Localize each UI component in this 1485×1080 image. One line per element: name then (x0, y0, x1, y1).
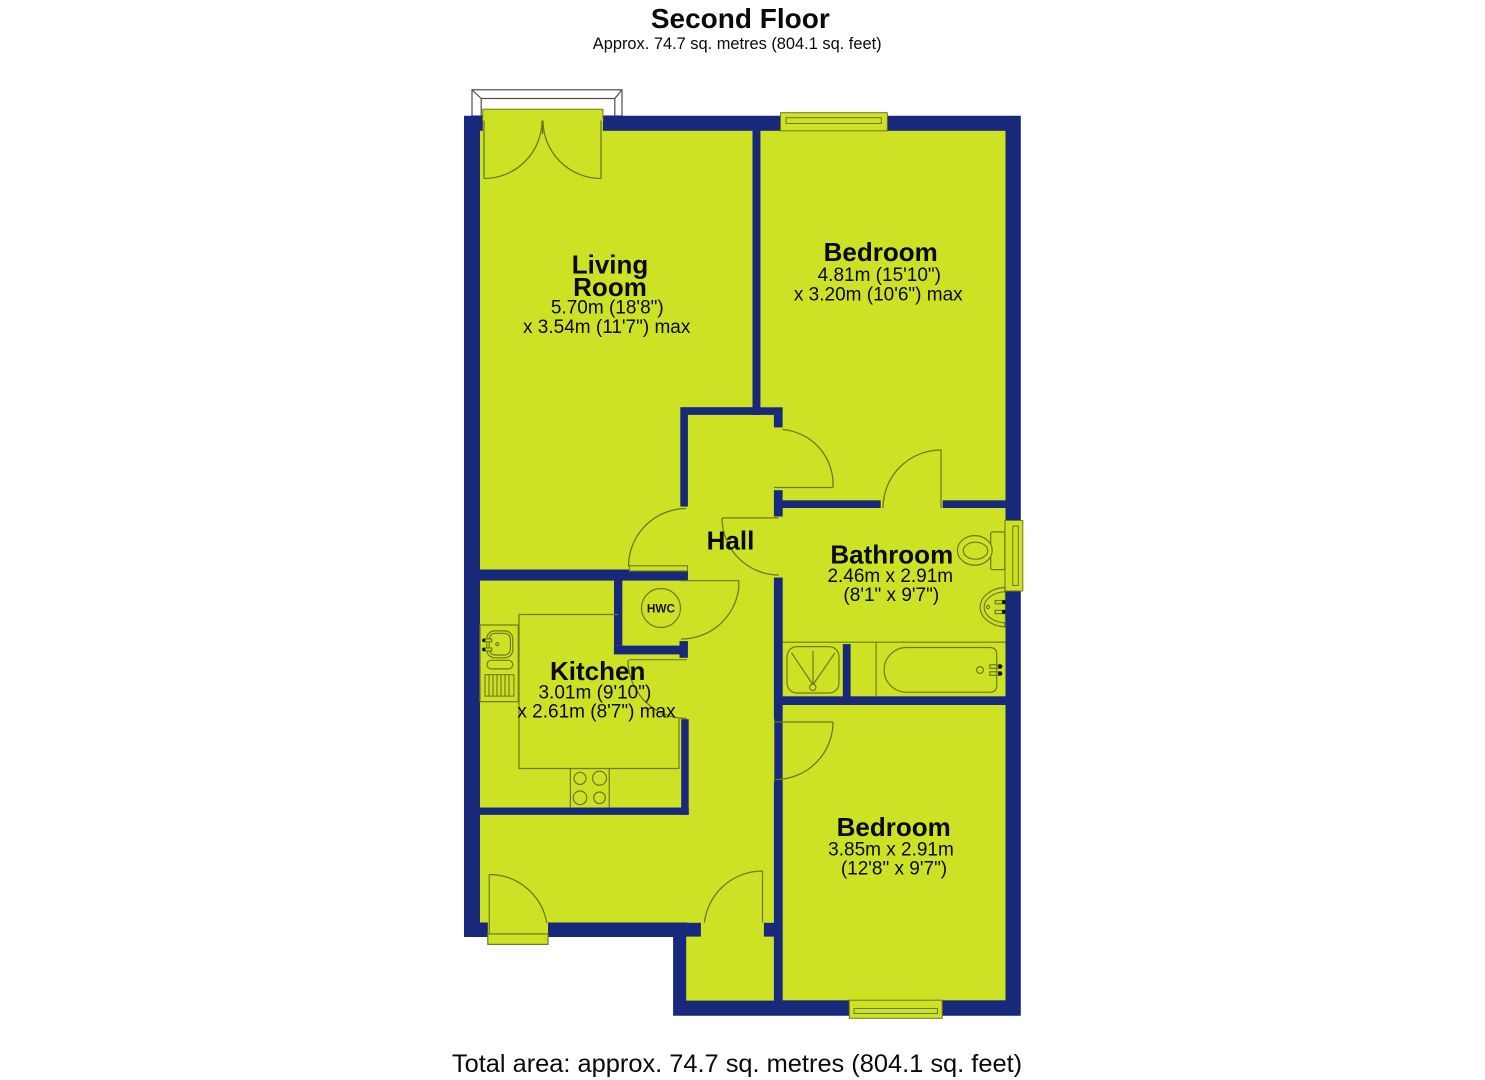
svg-text:x 3.54m (11'7") max: x 3.54m (11'7") max (523, 317, 691, 338)
svg-text:Bathroom: Bathroom (830, 539, 953, 569)
svg-text:4.81m (15'10"): 4.81m (15'10") (818, 265, 941, 286)
svg-text:Approx. 74.7 sq. metres (804.1: Approx. 74.7 sq. metres (804.1 sq. feet) (593, 35, 882, 53)
svg-text:2.46m x 2.91m: 2.46m x 2.91m (827, 566, 953, 587)
svg-text:(12'8" x 9'7"): (12'8" x 9'7") (841, 859, 947, 880)
svg-text:HWC: HWC (647, 602, 676, 616)
svg-text:(8'1" x 9'7"): (8'1" x 9'7") (843, 585, 939, 606)
svg-text:x 3.20m (10'6") max: x 3.20m (10'6") max (794, 285, 963, 306)
svg-text:Bedroom: Bedroom (837, 812, 951, 842)
svg-text:Bedroom: Bedroom (824, 237, 938, 267)
svg-text:x 2.61m (8'7") max: x 2.61m (8'7") max (517, 702, 676, 723)
svg-text:5.70m (18'8"): 5.70m (18'8") (551, 298, 664, 319)
svg-text:Hall: Hall (707, 526, 755, 556)
svg-text:Total area: approx. 74.7 sq. m: Total area: approx. 74.7 sq. metres (804… (452, 1050, 1022, 1078)
svg-text:Kitchen: Kitchen (550, 656, 645, 686)
svg-text:3.85m x 2.91m: 3.85m x 2.91m (828, 839, 954, 860)
svg-text:Second Floor: Second Floor (651, 3, 830, 34)
svg-text:3.01m (9'10"): 3.01m (9'10") (538, 683, 651, 704)
